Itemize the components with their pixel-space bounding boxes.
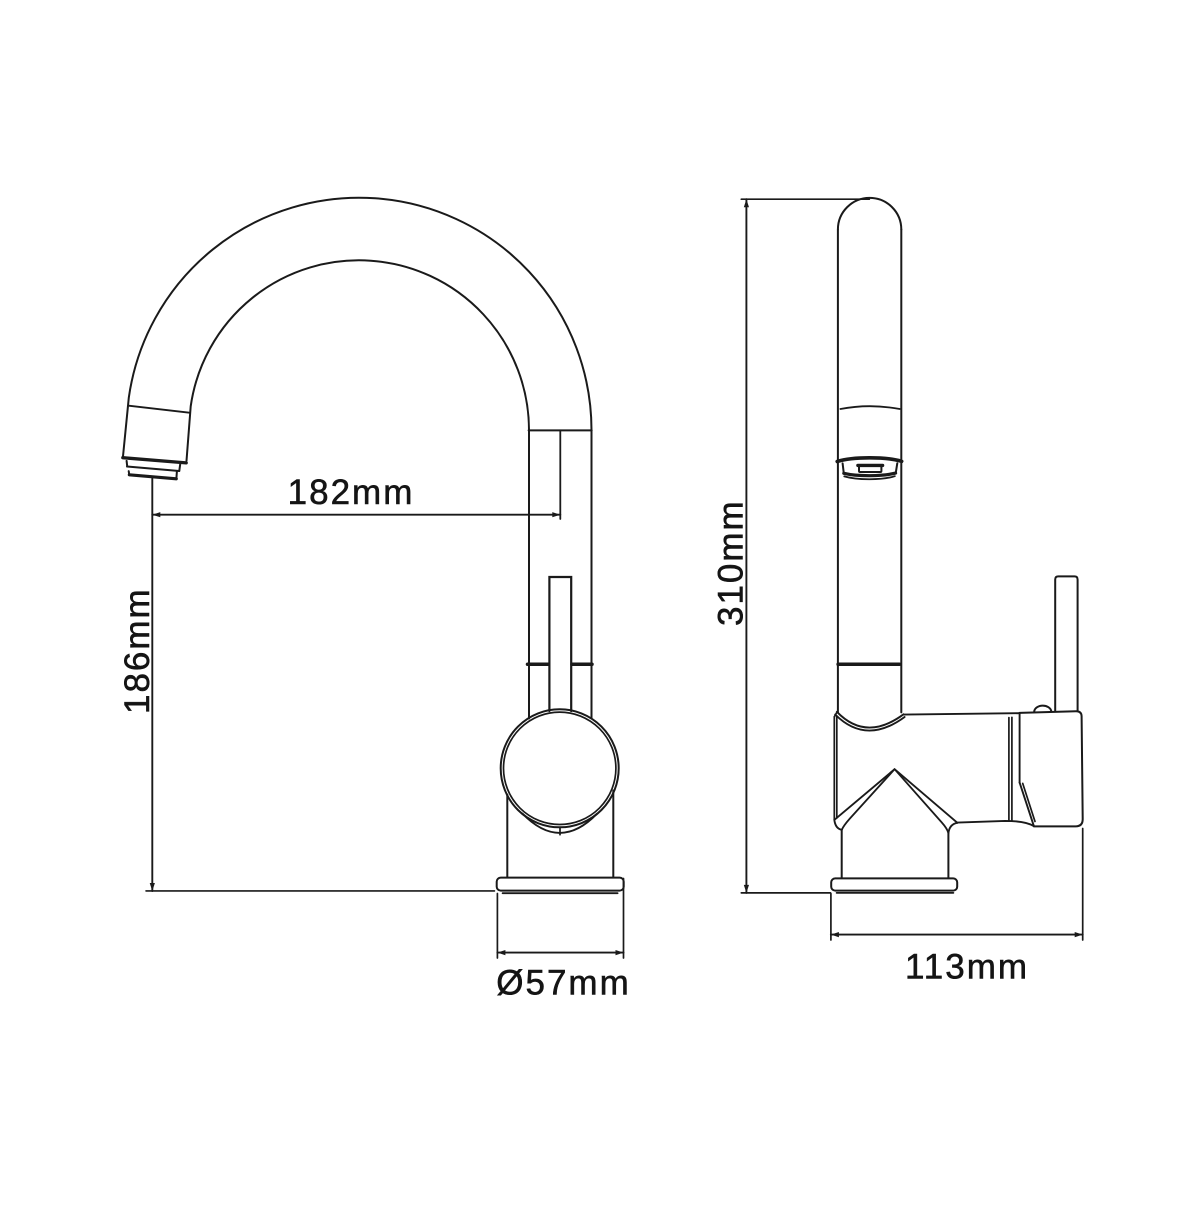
svg-text:113mm: 113mm bbox=[905, 948, 1029, 987]
svg-text:310mm: 310mm bbox=[712, 499, 751, 626]
svg-text:186mm: 186mm bbox=[118, 587, 157, 714]
svg-text:182mm: 182mm bbox=[288, 473, 415, 512]
svg-text:Ø57mm: Ø57mm bbox=[496, 964, 630, 1003]
